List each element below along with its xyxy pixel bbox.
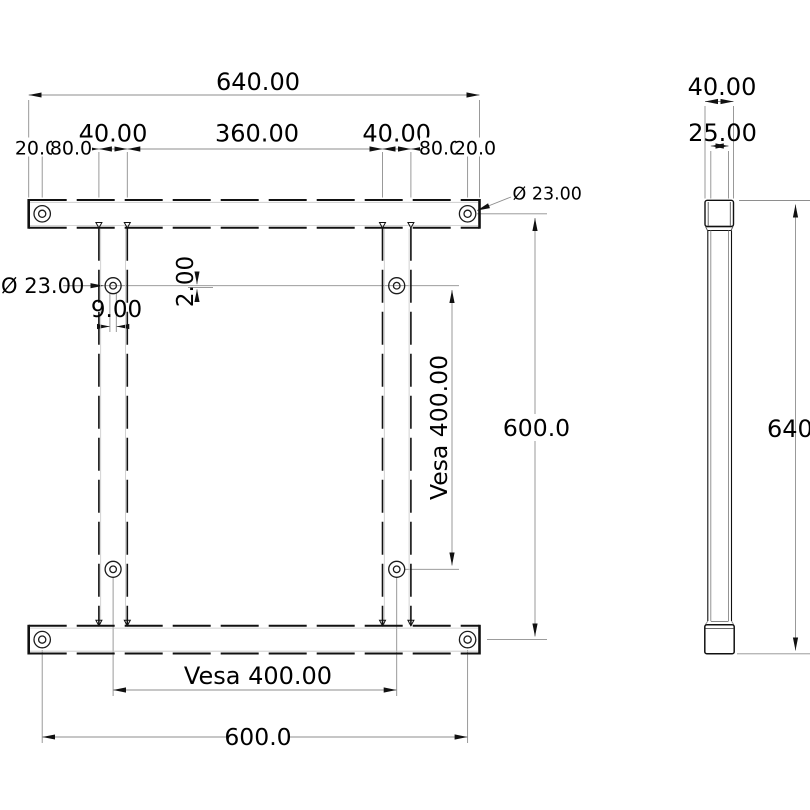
dim-leg-hole-label: 9.00 — [91, 297, 142, 323]
labels: 640.00 40.00 360.00 40.00 20.0 80.0 80.0… — [1, 68, 810, 751]
dim-hole-dia-left-label: Ø 23.00 — [1, 274, 84, 298]
hole-inner — [39, 210, 46, 217]
dim-vesa-horizontal-label: Vesa 400.00 — [184, 662, 332, 690]
dim-leg-depth-label: 25.00 — [688, 119, 757, 147]
front-view — [29, 199, 480, 655]
leader-corner-hole — [477, 197, 511, 211]
dim-holes-height-label: 600.0 — [503, 414, 570, 442]
corner-hole-top-right — [459, 206, 475, 222]
hole-outer — [34, 631, 50, 647]
technical-drawing-canvas: 640.00 40.00 360.00 40.00 20.0 80.0 80.0… — [0, 0, 810, 810]
hole-outer — [389, 561, 405, 577]
side-top-block — [705, 200, 734, 226]
bottom-bar — [29, 625, 480, 655]
corner-hole-top-left — [34, 206, 50, 222]
hole-outer — [34, 206, 50, 222]
hole-outer — [459, 206, 475, 222]
dim-span-inner-label: 360.00 — [215, 120, 299, 148]
dim-offset-left-label: 80.0 — [50, 138, 92, 160]
dim-side-height-label: 640.0 — [767, 415, 810, 443]
vesa-hole-bottom-right — [389, 561, 405, 577]
hole-outer — [459, 631, 475, 647]
dim-holes-width-label: 600.0 — [224, 723, 291, 751]
hole-inner — [110, 566, 117, 573]
hole-inner — [393, 566, 400, 573]
side-view — [705, 200, 734, 653]
vesa-hole-bottom-left — [105, 561, 121, 577]
dim-depth-label: 40.00 — [688, 73, 757, 101]
hole-inner — [464, 636, 471, 643]
corner-hole-bottom-left — [34, 631, 50, 647]
hole-inner — [464, 210, 471, 217]
dim-total-width-label: 640.00 — [216, 68, 300, 96]
vesa-bracket-drawing: 640.00 40.00 360.00 40.00 20.0 80.0 80.0… — [0, 0, 810, 810]
hole-inner — [39, 636, 46, 643]
hole-outer — [105, 561, 121, 577]
side-bottom-block — [705, 625, 734, 654]
dim-edge-right-label: 20.0 — [454, 138, 496, 160]
dim-thickness-label: 2.00 — [173, 256, 199, 307]
dim-vesa-vertical-label: Vesa 400.00 — [425, 355, 453, 500]
dim-hole-dia-corner-label: Ø 23.00 — [513, 185, 582, 205]
corner-hole-bottom-right — [459, 631, 475, 647]
